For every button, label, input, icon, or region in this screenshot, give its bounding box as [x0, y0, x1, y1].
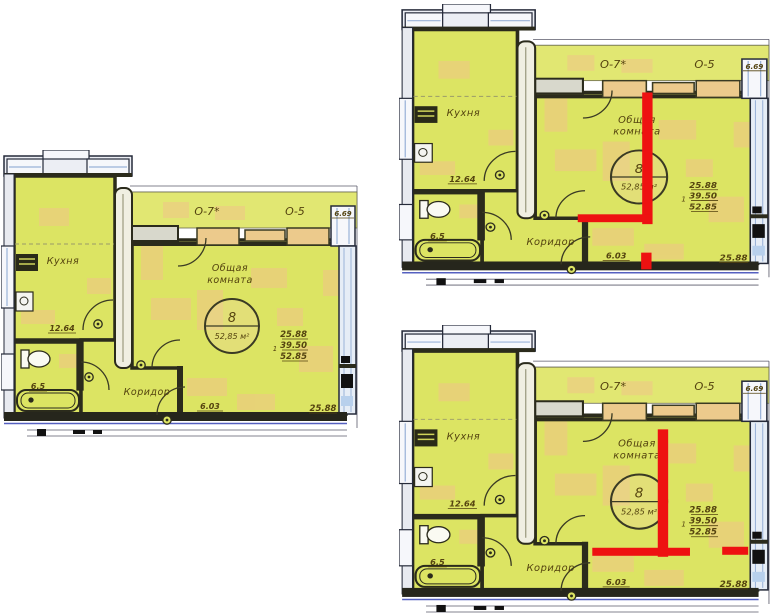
window-sill-icon: [696, 81, 740, 98]
kitchen-area: 12.64: [49, 324, 75, 333]
area-stack-prefix: 1: [681, 195, 686, 204]
outlet-icon: [567, 592, 576, 600]
window-left-label: О-7*: [600, 58, 627, 71]
window-sill-icon: [197, 228, 239, 245]
area-stack-2: 39.50: [280, 341, 307, 351]
bottom-wall: [4, 412, 347, 436]
area-stack-3: 52.85: [280, 352, 307, 362]
sink-icon: [16, 292, 33, 311]
room-title-1: Общая: [618, 438, 656, 450]
window-sill-icon: [603, 403, 647, 420]
room-title-2: комната: [613, 451, 660, 462]
corridor-area: 6.03: [606, 251, 627, 261]
unit-area: 52,85 м²: [215, 332, 250, 341]
outlet-icon: [85, 373, 93, 381]
room-title-2: комната: [207, 275, 253, 286]
window-icon: [399, 530, 413, 566]
right-wall-strip: [750, 98, 768, 263]
toilet-icon: [28, 351, 50, 367]
window-sill-icon: [696, 403, 740, 420]
corridor-living-wall: [177, 366, 183, 414]
corridor-area: 6.03: [606, 577, 627, 587]
bottom-wall: [402, 588, 758, 612]
red-annotation-line: [641, 253, 651, 270]
area-stack-prefix: 1: [681, 520, 686, 529]
bathroom-area: 6.5: [430, 231, 445, 241]
fixture-icon: [341, 374, 353, 388]
corridor-label: Коридор: [527, 563, 575, 574]
area-stack-3: 52.85: [689, 203, 717, 213]
area-stack-1: 25.88: [280, 330, 307, 340]
red-annotation-line: [592, 548, 690, 556]
red-annotation-line: [642, 92, 652, 224]
room-width-bottom: 25.88: [720, 254, 748, 264]
toilet-icon: [427, 527, 450, 543]
corridor-living-wall: [582, 542, 588, 590]
corridor-label: Коридор: [124, 387, 171, 398]
fixture-icon: [752, 550, 764, 564]
kitchen-top-wall: [4, 150, 132, 177]
room-width-bottom: 25.88: [720, 580, 748, 590]
electric-panel-icon: [16, 254, 38, 271]
outlet-icon: [540, 211, 549, 219]
left-wall: [399, 28, 413, 268]
window-sill-icon: [245, 230, 285, 241]
kitchen-area: 12.64: [449, 499, 476, 509]
outlet-icon: [567, 265, 576, 273]
room-width-bottom: 25.88: [310, 404, 337, 414]
window-icon: [1, 354, 14, 390]
outlet-icon: [540, 537, 549, 545]
outlet-icon: [495, 495, 504, 503]
window-sill-icon: [653, 83, 695, 94]
red-annotation-line: [722, 547, 748, 555]
room-title-2: комната: [613, 127, 660, 138]
shaft-wall: [517, 41, 535, 218]
kitchen-label: Кухня: [47, 256, 79, 267]
kitchen-label: Кухня: [447, 108, 481, 119]
kitchen-top-wall: [402, 325, 535, 352]
window-right-label: О-5: [694, 58, 714, 71]
area-stack-1: 25.88: [689, 506, 717, 516]
area-stack-2: 39.50: [689, 517, 717, 527]
unit-number: 8: [228, 311, 236, 326]
window-sill-icon: [603, 81, 647, 98]
unit-area: 52,85 м²: [621, 507, 658, 517]
bathroom-area: 6.5: [31, 382, 46, 391]
electric-panel-icon: [415, 106, 438, 123]
window-sill-icon: [287, 228, 329, 245]
window-left-label: О-7*: [194, 205, 220, 218]
plan-left: 8 52,85 м² Кухня 12.64 6.5 Коридор 6.03 …: [1, 150, 358, 440]
area-stack-2: 39.50: [689, 192, 717, 202]
left-wall: [399, 349, 413, 594]
red-annotation-line: [578, 214, 652, 222]
area-stack-3: 52.85: [689, 528, 717, 538]
right-wall-strip: [750, 421, 768, 590]
fixture-icon: [752, 224, 764, 238]
left-wall: [1, 174, 14, 418]
outlet-icon: [163, 416, 171, 424]
fixture-icon: [752, 532, 761, 539]
fixture-icon: [341, 356, 350, 363]
unit-circle: 8 52,85 м²: [205, 299, 259, 353]
bathroom-area: 6.5: [430, 557, 445, 567]
window-sill-icon: [443, 325, 491, 334]
window-icon: [399, 204, 413, 239]
window-dim-label: 6.69: [745, 62, 763, 71]
window-dim-label: 6.69: [745, 384, 763, 393]
kitchen-label: Кухня: [447, 432, 481, 443]
outlet-icon: [486, 549, 495, 557]
plan-bottom-right: 8 52,85 м² Кухня 12.64 6.5 Коридор 6.03 …: [399, 325, 770, 616]
window-right-label: О-5: [285, 205, 305, 218]
window-sill-icon: [443, 4, 491, 13]
electric-panel-icon: [415, 429, 438, 446]
window-sill-icon: [43, 150, 89, 159]
floorplan-sheet: 8 52,85 м² Кухня 12.64 6.5 Коридор 6.03 …: [0, 0, 770, 616]
outlet-icon: [486, 223, 495, 231]
kitchen-top-wall: [402, 4, 535, 31]
area-stack-prefix: 1: [273, 345, 277, 353]
plan-top-right: 8 52,85 м² Кухня 12.64 6.5 Коридор 6.03 …: [399, 4, 770, 289]
shaft-wall: [517, 363, 535, 544]
kitchen-area: 12.64: [449, 174, 476, 184]
outlet-icon: [495, 171, 504, 179]
red-annotation-line: [658, 429, 668, 556]
corridor-area: 6.03: [200, 402, 220, 411]
sink-icon: [415, 144, 433, 163]
toilet-icon: [427, 202, 450, 218]
room-title-1: Общая: [212, 263, 248, 274]
window-left-label: О-7*: [600, 380, 626, 393]
area-stack-1: 25.88: [689, 181, 717, 191]
unit-number: 8: [635, 162, 644, 177]
unit-number: 8: [635, 487, 644, 502]
window-right-label: О-5: [694, 380, 714, 393]
sink-icon: [415, 467, 433, 486]
outlet-icon: [94, 320, 102, 328]
outlet-icon: [137, 361, 145, 369]
corridor-living-wall: [582, 216, 588, 263]
window-dim-label: 6.69: [334, 210, 351, 218]
unit-circle: 8 52,85 м²: [611, 150, 667, 203]
fixture-icon: [752, 206, 761, 213]
bottom-wall: [402, 261, 758, 285]
corridor-label: Коридор: [527, 237, 575, 248]
right-wall-strip: [339, 246, 356, 414]
window-sill-icon: [653, 405, 695, 416]
shaft-wall: [115, 188, 132, 368]
